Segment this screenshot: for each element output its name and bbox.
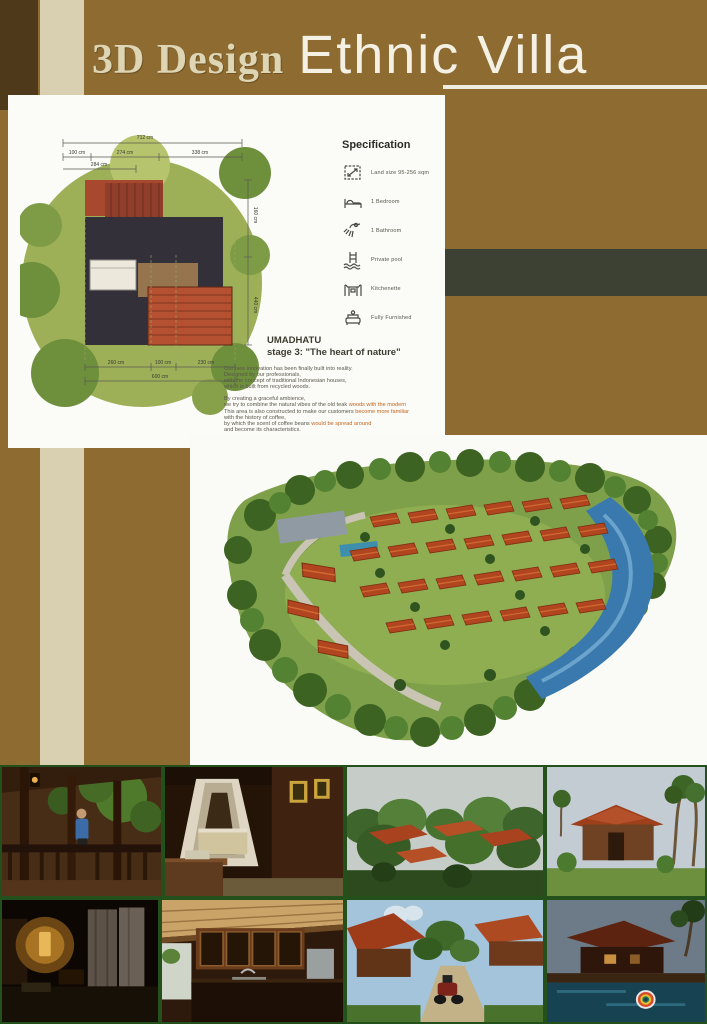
project-stage: stage 3: "The heart of nature" bbox=[267, 347, 401, 359]
spec-item-kitchenette: Kitchenette bbox=[342, 279, 442, 299]
furnished-icon bbox=[342, 308, 364, 328]
dim-right-1: 160 cm bbox=[252, 207, 258, 223]
title-3d-design: 3D Design bbox=[92, 36, 284, 84]
page-title: 3D Design Ethnic Villa bbox=[92, 24, 588, 86]
dim-top-seg1: 100 cm bbox=[69, 150, 85, 156]
photo-row-2 bbox=[0, 898, 707, 1024]
photo-kitchenette-interior bbox=[160, 898, 345, 1024]
spec-item-label: 1 Bedroom bbox=[371, 199, 400, 205]
spec-item-bathroom: 1 Bathroom bbox=[342, 221, 442, 241]
specification-section: Specification Land size 95-256 sqm 1 Bed… bbox=[342, 139, 442, 337]
photo-bedroom-night-lamp bbox=[0, 898, 160, 1024]
dim-top-total: 712 cm bbox=[137, 135, 153, 141]
description-line: and become its characteristics. bbox=[224, 427, 445, 433]
spec-item-label: 1 Bathroom bbox=[371, 228, 401, 234]
olive-horizontal-band bbox=[438, 249, 707, 296]
project-brand: UMADHATU bbox=[267, 335, 401, 347]
bedroom-icon bbox=[342, 192, 364, 212]
photo-grid bbox=[0, 765, 707, 1024]
spec-item-label: Kitchenette bbox=[371, 286, 401, 292]
aerial-panel bbox=[190, 435, 707, 766]
photo-pool-float-dusk bbox=[545, 898, 707, 1024]
spec-item-label: Land size 95-256 sqm bbox=[371, 170, 429, 176]
poster-page: 3D Design Ethnic Villa bbox=[0, 0, 707, 1024]
dim-right-2: 440 cm bbox=[252, 297, 258, 313]
spec-item-label: Private pool bbox=[371, 257, 402, 263]
dim-top-seg3: 338 cm bbox=[192, 150, 208, 156]
project-description: Our new innovation has been finally buil… bbox=[224, 366, 445, 433]
floorplan-panel: 712 cm 100 cm 274 cm 338 cm 284 cm 260 c… bbox=[8, 95, 445, 448]
dim-bottom-seg2: 100 cm bbox=[155, 360, 171, 366]
dim-bottom-seg3: 230 cm bbox=[198, 360, 214, 366]
kitchenette-icon bbox=[342, 279, 364, 299]
photo-villa-exterior-palms bbox=[545, 765, 707, 898]
photo-terrace-seating bbox=[0, 765, 163, 898]
specification-title: Specification bbox=[342, 139, 442, 151]
title-ethnic-villa: Ethnic Villa bbox=[298, 24, 588, 86]
project-heading: UMADHATU stage 3: "The heart of nature" bbox=[267, 335, 401, 359]
aerial-site-image bbox=[190, 445, 707, 760]
land-size-icon bbox=[342, 163, 364, 183]
dim-bottom-seg1: 260 cm bbox=[108, 360, 124, 366]
dim-top-seg2: 274 cm bbox=[117, 150, 133, 156]
dark-corner-block bbox=[0, 0, 38, 110]
spec-item-pool: Private pool bbox=[342, 250, 442, 270]
spec-item-bedroom: 1 Bedroom bbox=[342, 192, 442, 212]
bathroom-icon bbox=[342, 221, 364, 241]
dim-bottom-total: 600 cm bbox=[152, 374, 168, 380]
spec-item-furnished: Fully Furnished bbox=[342, 308, 442, 328]
dim-top-inner: 284 cm bbox=[91, 162, 107, 168]
spec-item-label: Fully Furnished bbox=[371, 315, 412, 321]
photo-canopy-bedroom bbox=[163, 765, 345, 898]
pool-icon bbox=[342, 250, 364, 270]
photo-aerial-garden-villas bbox=[345, 765, 545, 898]
photo-villa-pathway-motorbike bbox=[345, 898, 545, 1024]
spec-item-land: Land size 95-256 sqm bbox=[342, 163, 442, 183]
photo-row-1 bbox=[0, 765, 707, 898]
